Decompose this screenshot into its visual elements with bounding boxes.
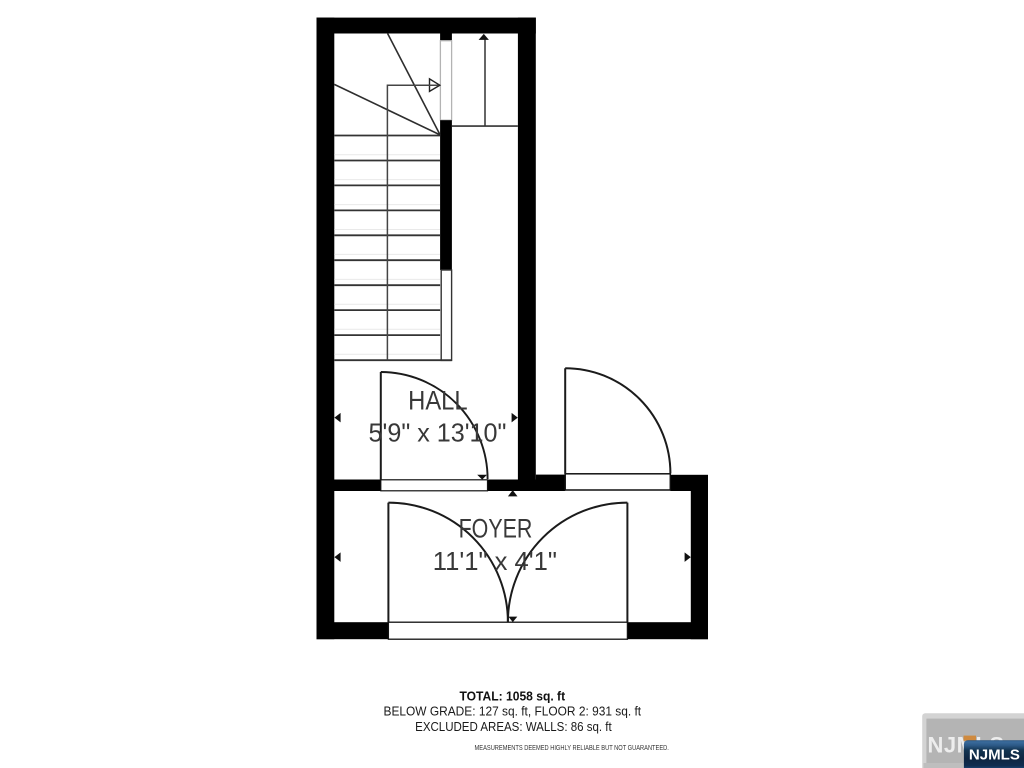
svg-text:FOYER: FOYER (459, 513, 533, 543)
svg-text:EXCLUDED AREAS: WALLS: 86 sq.: EXCLUDED AREAS: WALLS: 86 sq. ft (415, 719, 612, 734)
svg-text:TOTAL: 1058 sq. ft: TOTAL: 1058 sq. ft (460, 688, 566, 703)
svg-text:BELOW GRADE: 127 sq. ft, FLOOR: BELOW GRADE: 127 sq. ft, FLOOR 2: 931 sq… (384, 703, 642, 718)
svg-text:NJMLS: NJMLS (969, 747, 1020, 764)
svg-text:HALL: HALL (408, 386, 468, 416)
svg-text:MEASUREMENTS DEEMED HIGHLY REL: MEASUREMENTS DEEMED HIGHLY RELIABLE BUT … (475, 743, 669, 752)
svg-text:5'9" x 13'10": 5'9" x 13'10" (369, 418, 507, 448)
svg-text:11'1" x 4'1": 11'1" x 4'1" (433, 546, 557, 576)
